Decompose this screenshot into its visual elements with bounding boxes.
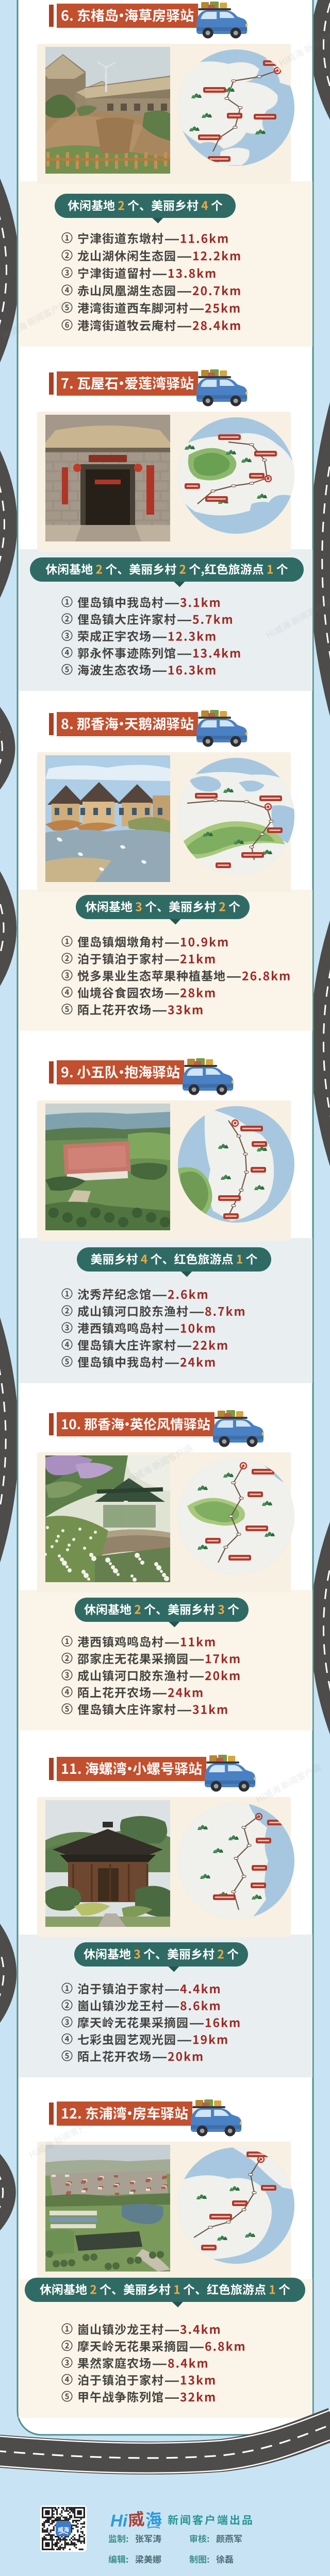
svg-text:Hi: Hi — [110, 2511, 128, 2530]
